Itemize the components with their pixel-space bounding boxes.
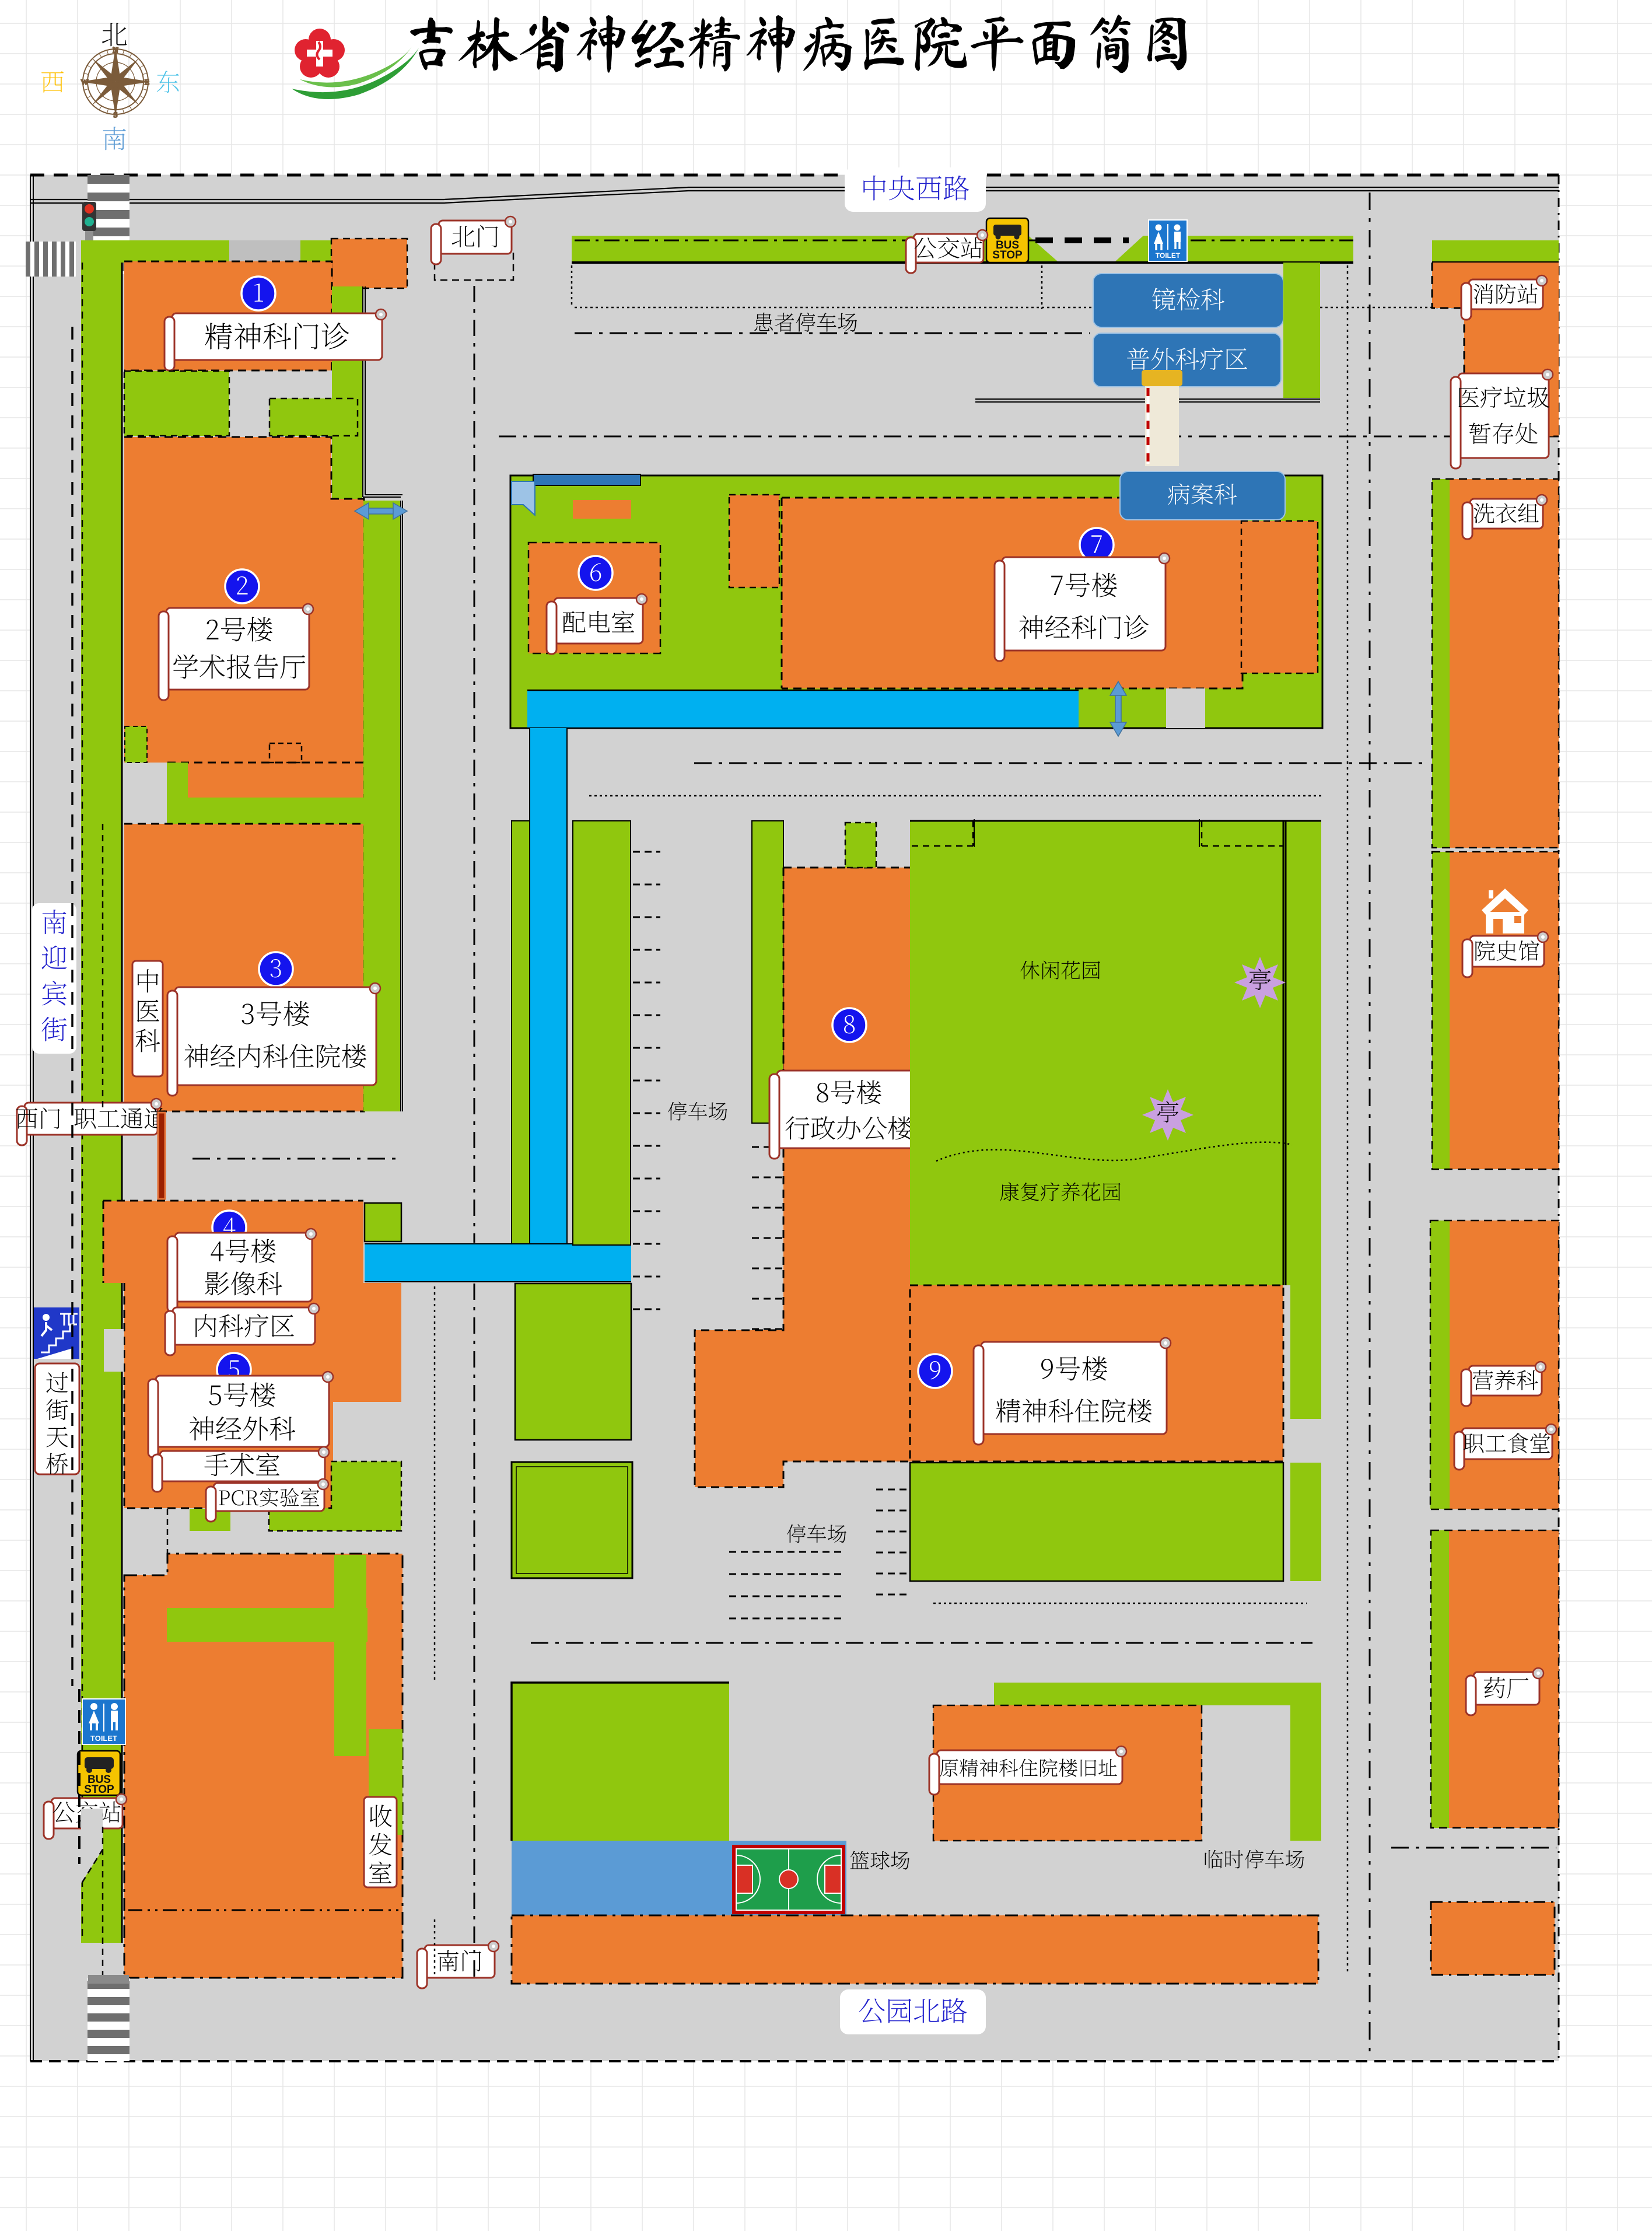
svg-text:W: W	[81, 78, 89, 86]
svg-text:E: E	[145, 78, 149, 86]
svg-text:STOP: STOP	[992, 249, 1023, 261]
svg-text:TOILET: TOILET	[1156, 251, 1181, 260]
svg-text:STOP: STOP	[84, 1784, 114, 1796]
svg-text:TOILET: TOILET	[90, 1734, 117, 1743]
svg-text:S: S	[113, 110, 117, 119]
svg-text:N: N	[113, 46, 118, 54]
